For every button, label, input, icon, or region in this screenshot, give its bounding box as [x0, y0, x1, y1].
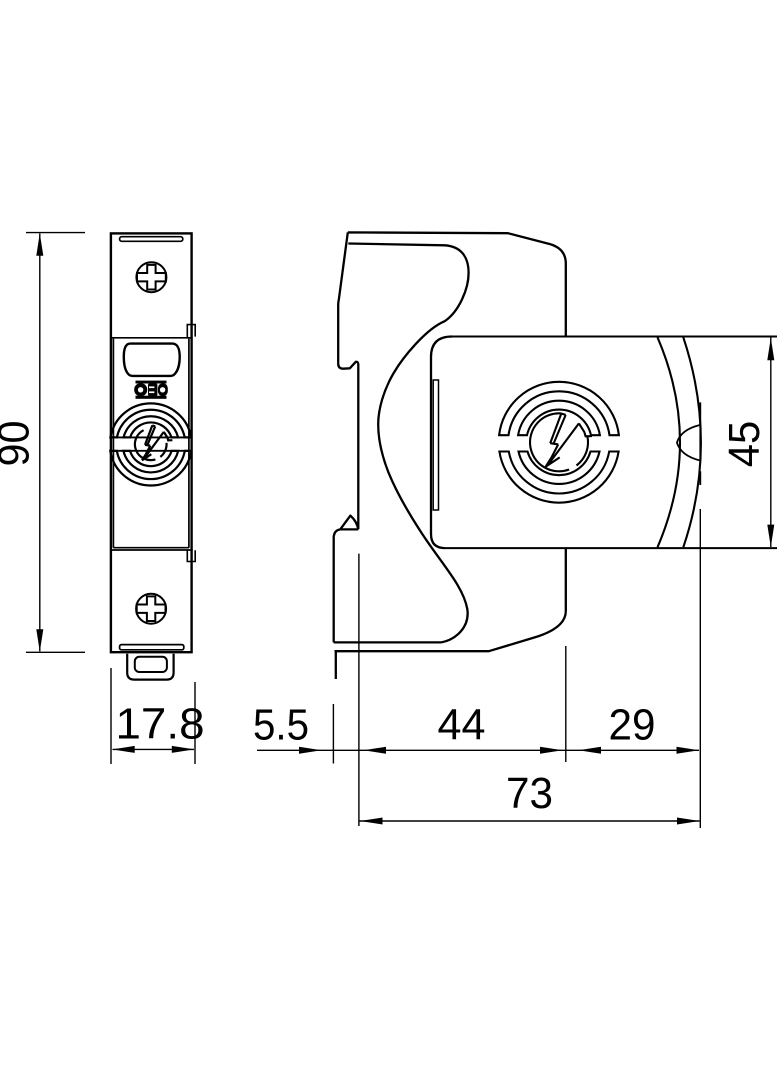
svg-text:29: 29	[609, 701, 656, 750]
svg-text:5.5: 5.5	[253, 701, 309, 750]
svg-text:90: 90	[0, 421, 39, 467]
svg-text:44: 44	[438, 701, 486, 750]
svg-text:45: 45	[720, 421, 769, 468]
svg-text:73: 73	[506, 769, 553, 818]
svg-text:17.8: 17.8	[116, 700, 205, 749]
